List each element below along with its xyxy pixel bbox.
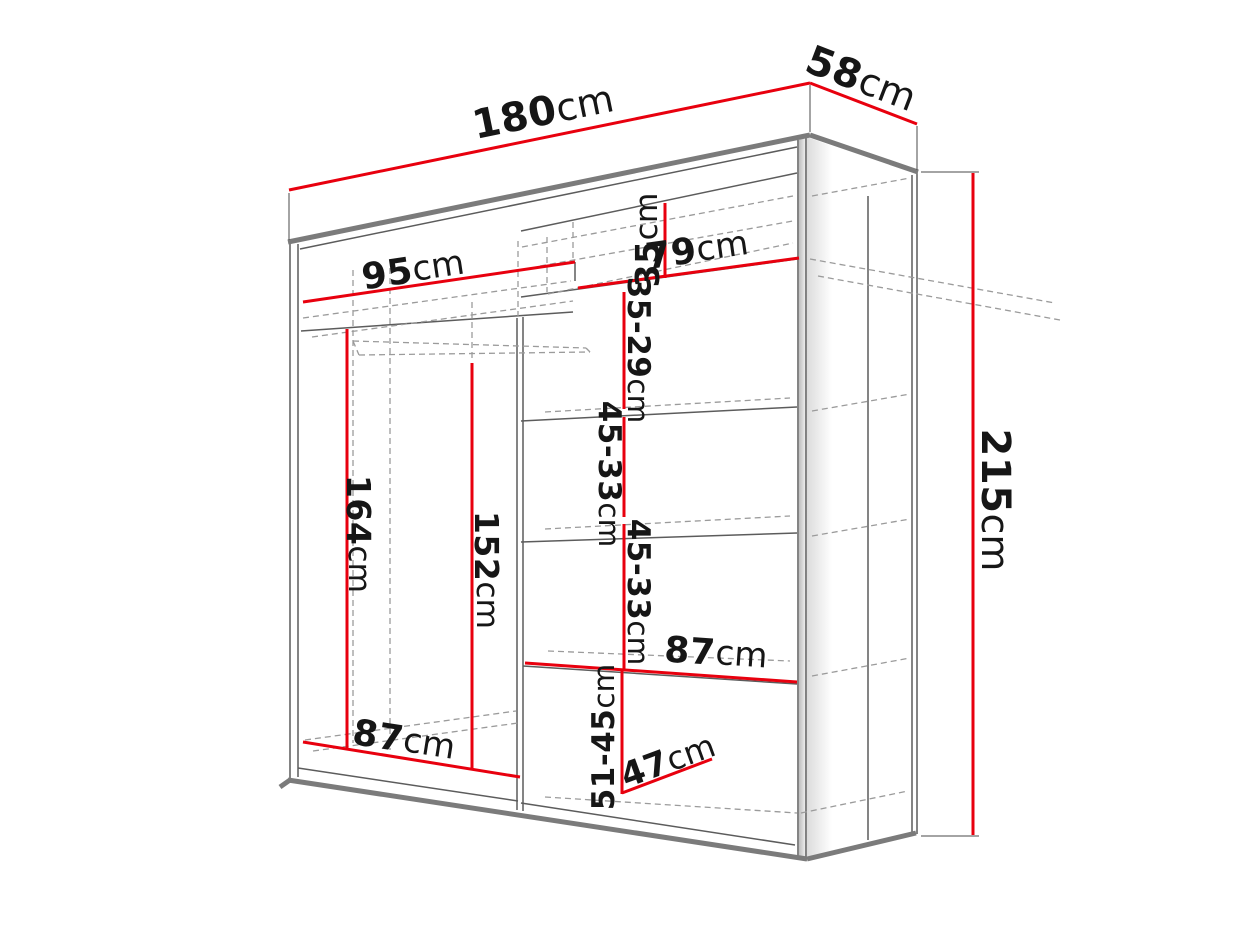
- label-152cm: 152cm: [468, 511, 507, 629]
- label-51-45cm: 51-45cm: [586, 664, 622, 811]
- left-top-shelf: [301, 312, 573, 331]
- label-58cm: 58cm: [799, 37, 922, 121]
- top-shelf-projection-1: [810, 259, 1055, 303]
- hanging-rail-back: [359, 352, 590, 355]
- stile-shading: [799, 136, 806, 860]
- dimension-labels-layer: 180cm58cm215cm95cm79cm35cm35-29cm45-33cm…: [340, 37, 1019, 810]
- plinth-step: [280, 780, 290, 787]
- label-95cm: 95cm: [359, 242, 467, 298]
- shelf-d-back: [545, 516, 790, 529]
- label-215cm: 215cm: [972, 429, 1018, 572]
- hanging-rail-front: [353, 341, 586, 348]
- right-shelf-c: [521, 407, 797, 421]
- hanging-rail-end-left: [353, 341, 359, 355]
- label-35cm: 35cm: [628, 193, 667, 288]
- label-47cm: 47cm: [615, 726, 720, 797]
- front-bottom-edge: [288, 780, 807, 859]
- label-87cm-left: 87cm: [350, 712, 458, 769]
- side-panel-shading: [807, 137, 832, 860]
- right-shelf-d: [521, 533, 797, 542]
- wardrobe-diagram-svg: 180cm58cm215cm95cm79cm35cm35-29cm45-33cm…: [0, 0, 1234, 925]
- left-shelf-back-2: [312, 301, 573, 337]
- hanging-rail-end-right: [586, 348, 590, 352]
- label-164cm: 164cm: [340, 475, 379, 593]
- label-87cm-right: 87cm: [663, 629, 769, 677]
- wardrobe-dimension-diagram: 180cm58cm215cm95cm79cm35cm35-29cm45-33cm…: [0, 0, 1234, 925]
- label-45-33cm-b: 45-33cm: [620, 519, 656, 666]
- floor-back-right: [545, 797, 797, 813]
